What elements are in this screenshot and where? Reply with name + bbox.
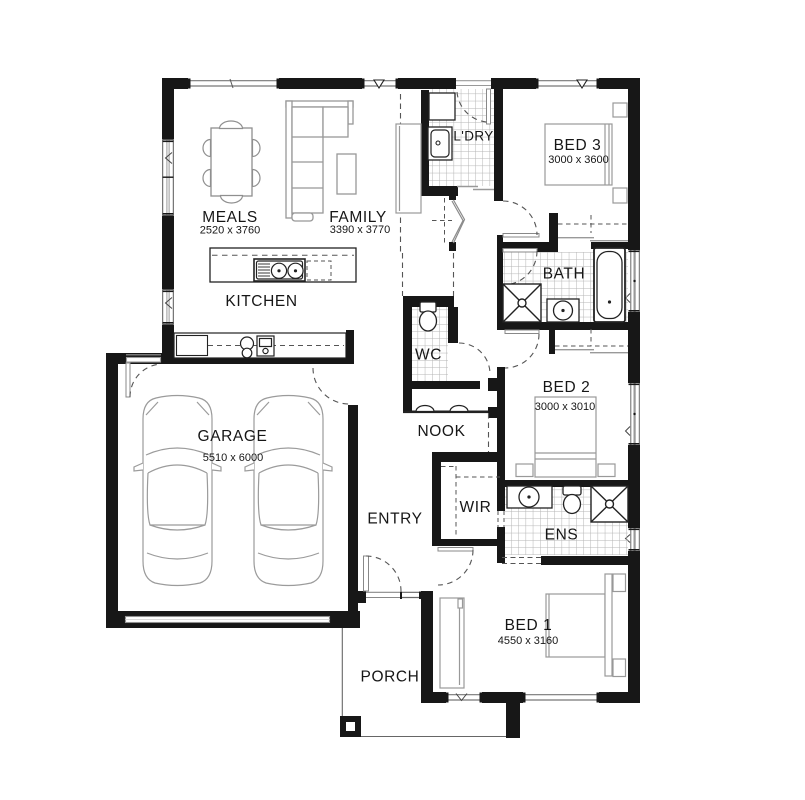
- svg-text:L'DRY: L'DRY: [453, 129, 493, 144]
- svg-text:BED 3: BED 3: [554, 137, 602, 154]
- svg-text:BED 1: BED 1: [505, 617, 553, 634]
- svg-text:3000 x 3010: 3000 x 3010: [535, 401, 596, 413]
- svg-text:3390 x 3770: 3390 x 3770: [330, 224, 391, 236]
- svg-text:5510 x 6000: 5510 x 6000: [203, 452, 264, 464]
- svg-text:4550 x 3160: 4550 x 3160: [498, 635, 559, 647]
- svg-text:KITCHEN: KITCHEN: [225, 293, 297, 310]
- svg-text:ENS: ENS: [545, 527, 579, 544]
- svg-text:ENTRY: ENTRY: [367, 511, 422, 528]
- svg-text:GARAGE: GARAGE: [198, 428, 268, 445]
- svg-text:2520 x 3760: 2520 x 3760: [200, 225, 261, 237]
- svg-text:WC: WC: [415, 347, 442, 364]
- svg-text:NOOK: NOOK: [417, 423, 465, 440]
- svg-text:WIR: WIR: [460, 499, 492, 516]
- svg-text:BED 2: BED 2: [543, 379, 591, 396]
- svg-text:MEALS: MEALS: [202, 209, 258, 226]
- svg-text:3000 x 3600: 3000 x 3600: [548, 154, 609, 166]
- svg-text:BATH: BATH: [543, 266, 586, 283]
- svg-text:PORCH: PORCH: [361, 669, 420, 686]
